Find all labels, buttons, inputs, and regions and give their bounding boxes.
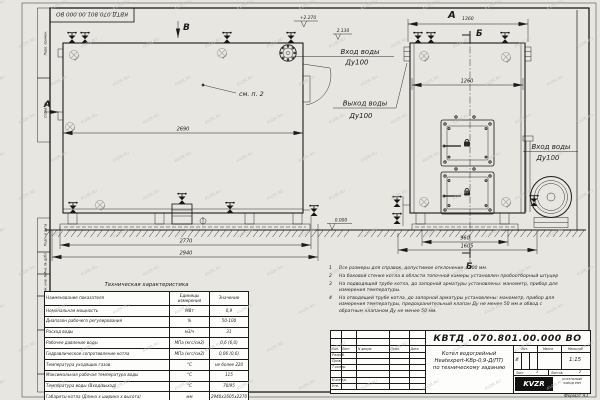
tech-col-header: Значение: [209, 292, 248, 305]
rotation-mark-icon: [419, 197, 428, 208]
dim-2770: 2770: [180, 239, 193, 245]
dim-1360: 1360: [462, 16, 474, 22]
param-value: не более 220: [209, 360, 248, 370]
param-unit: °С: [169, 371, 209, 381]
note-number: 2: [329, 274, 339, 280]
tech-col-header: Единицы измерения: [169, 292, 209, 305]
dim-960: 960: [460, 236, 470, 242]
tb-product-name: Котел водогрейный Heatexpert-КВр-0,9-Д(П…: [425, 345, 513, 393]
param-name: Температура воды (Вход/выход): [45, 382, 169, 392]
tb-mass-label: Масса: [543, 347, 553, 351]
valve-icon: [222, 32, 231, 43]
note-text: На отводящей трубе котла, до запорной ар…: [339, 296, 567, 315]
tb-row-tkontr: Т.контр.: [332, 365, 346, 369]
param-name: Диапазон рабочего регулирования: [45, 317, 169, 327]
top-stamp-text: КВТД.070.801.00.000 ВО: [55, 11, 127, 17]
param-name: Рабочее давление воды: [45, 338, 169, 348]
param-value: 2940х1605х2270: [209, 392, 248, 400]
notes-list: 1 Все размеры для справок, допустимое от…: [329, 266, 567, 317]
door-lock-icon: [464, 140, 470, 147]
furnace-door-lower: [441, 168, 494, 214]
inlet-flange-icon: [280, 45, 296, 61]
tb-lit-value: И: [516, 357, 519, 362]
note-item: 2 На боковой стенке котла в области топо…: [329, 274, 567, 280]
tb-company: КОТЕЛЬНЫЙ ЗАВОД РЭП: [555, 378, 589, 386]
drawing-sheet: Перв. примен. Справ. № Подп. и дата Инв.…: [0, 0, 600, 400]
frame-label: Перв. примен.: [43, 31, 47, 56]
callout-see-p2: см. п. 2: [239, 90, 264, 98]
label-inlet-size-side: Ду100: [345, 59, 370, 67]
table-row: Габариты котла (Длина х ширина х высота)…: [45, 391, 248, 400]
valve-icon: [426, 32, 435, 43]
table-row: Максимальная рабочая температура воды °С…: [45, 370, 248, 381]
param-value: 31: [209, 328, 248, 338]
note-text: На подводящей трубе котла, до запорной а…: [339, 282, 567, 295]
tb-col-podp: Подп.: [391, 347, 400, 351]
rotation-mark-icon: [95, 200, 104, 211]
label-inlet-side: Вход воды: [340, 48, 380, 56]
tech-table-title: Техническая характеристика: [44, 282, 249, 291]
valve-icon: [413, 32, 422, 43]
dim-2690: 2690: [177, 127, 190, 133]
view-label-a-side: А: [43, 100, 51, 110]
tb-scale-label: Масштаб: [568, 347, 583, 351]
tb-product-line1: Котел водогрейный: [425, 351, 513, 358]
elev-2130: 2.130: [337, 28, 350, 34]
tech-table: Техническая характеристика Наименование …: [44, 282, 249, 400]
param-unit: МВт: [169, 306, 209, 316]
valve-icon: [500, 32, 509, 43]
valve-icon: [68, 202, 77, 213]
elev-2270: +2.270: [300, 15, 316, 21]
param-name: Температура уходящих газов: [45, 360, 169, 370]
tb-col-izm: Изм.: [332, 347, 339, 351]
param-value: 50-100: [209, 317, 248, 327]
label-outlet-size-side: Ду100: [349, 112, 374, 120]
note-text: Все размеры для справок, допустимое откл…: [339, 266, 567, 272]
view-label-v: В: [183, 23, 190, 33]
table-row: Диапазон рабочего регулирования % 50-100: [45, 316, 248, 327]
param-name: Гидравлическое сопротивление котла: [45, 349, 169, 359]
valve-icon: [225, 202, 234, 213]
tb-row-prov: Пров.: [332, 359, 342, 363]
param-name: Максимальная рабочая температура воды: [45, 371, 169, 381]
param-unit: МПа (кгс/см2): [169, 349, 209, 359]
note-item: 4 На отводящей трубе котла, до запорной …: [329, 296, 567, 315]
label-inlet-front: Вход воды: [531, 143, 571, 151]
tb-sheet-label: Лист: [516, 371, 524, 375]
rotation-mark-icon: [501, 197, 510, 208]
ground: [45, 230, 586, 237]
tb-lit-label: Лит.: [521, 347, 528, 351]
tb-scale-value: 1:15: [569, 357, 581, 363]
tb-row-nkontr: Н.контр.: [332, 378, 347, 382]
note-item: 3 На подводящей трубе котла, до запорной…: [329, 282, 567, 295]
rotation-mark-icon: [217, 48, 226, 59]
param-value: 0,06 (0,6): [209, 349, 248, 359]
dim-1605: 1605: [461, 244, 474, 250]
tech-col-header: Наименование показателя: [45, 292, 169, 305]
param-value: 70/95: [209, 382, 248, 392]
table-row: Рабочее давление воды МПа (кгс/см2) 0,6 …: [45, 337, 248, 348]
rotation-mark-icon: [69, 50, 78, 61]
table-row: Номинальная мощность МВт 0,9: [45, 305, 248, 316]
format-note: Формат А3: [500, 393, 588, 398]
tb-col-data: Дата: [411, 347, 419, 351]
side-view: 2690 2770 2940 +2.270 2.130 0.000 В А: [43, 15, 407, 261]
label-outlet-side: Выход воды: [343, 100, 388, 108]
valve-icon: [177, 193, 186, 204]
rotation-mark-icon: [419, 51, 428, 62]
drain-valve-icon: [309, 205, 318, 216]
rotation-mark-icon: [65, 122, 74, 133]
param-value: 115: [209, 371, 248, 381]
rotation-mark-icon: [501, 52, 510, 63]
furnace-door-upper: [441, 116, 494, 166]
valve-icon: [67, 32, 76, 43]
door-lock-icon: [464, 189, 470, 196]
dim-1260: 1260: [461, 79, 474, 85]
valve-icon: [80, 32, 89, 43]
note-item: 1 Все размеры для справок, допустимое от…: [329, 266, 567, 272]
table-row: Температура воды (Вход/выход) °С 70/95: [45, 381, 248, 392]
table-row: Температура уходящих газов °С не более 2…: [45, 359, 248, 370]
tb-doc-number: КВТД .070.801.00.000 ВО: [425, 331, 590, 345]
kvzr-logo: KVZR: [515, 377, 553, 391]
param-name: Номинальная мощность: [45, 306, 169, 316]
param-value: 0,6 (6,0): [209, 338, 248, 348]
tb-col-list: Лист: [342, 347, 350, 351]
section-label-b-top: Б: [476, 29, 483, 39]
valve-icon: [286, 32, 295, 43]
valve-icon: [392, 196, 401, 207]
note-number: 3: [329, 282, 339, 295]
param-unit: м3/ч: [169, 328, 209, 338]
dim-2940: 2940: [180, 251, 193, 257]
tb-product-line3: по техническому заданию: [425, 365, 513, 372]
param-unit: °С: [169, 360, 209, 370]
tb-sheet-value: 1: [536, 370, 538, 374]
note-number: 4: [329, 296, 339, 315]
elev-0000: 0.000: [335, 218, 348, 224]
tb-row-razrab: Разраб.: [332, 353, 345, 357]
tb-product-line2: Heatexpert-КВр-0,9-Д(ПТ): [425, 358, 513, 365]
tb-company-line2: ЗАВОД РЭП: [555, 382, 589, 386]
blower-fan-icon: [531, 177, 572, 228]
param-name: Габариты котла (Длина х ширина х высота): [45, 392, 169, 400]
tb-row-utv: Утв.: [332, 384, 339, 388]
tb-sheets-value: 2: [579, 370, 581, 374]
front-view: Б Б 1260: [392, 10, 578, 272]
tb-col-dokum: N докум.: [358, 347, 372, 351]
view-label-a-front: А: [447, 10, 456, 21]
table-row: Расход воды м3/ч 31: [45, 327, 248, 338]
label-inlet-size-front: Ду100: [536, 154, 561, 162]
table-row: Гидравлическое сопротивление котла МПа (…: [45, 348, 248, 359]
note-number: 1: [329, 266, 339, 272]
valve-icon: [392, 213, 401, 224]
tb-sheets-label: Листов: [551, 371, 563, 375]
param-value: 0,9: [209, 306, 248, 316]
param-unit: мм: [169, 392, 209, 400]
pump-icon: [172, 204, 206, 225]
param-unit: %: [169, 317, 209, 327]
param-name: Расход воды: [45, 328, 169, 338]
title-block: Изм. Лист N докум. Подп. Дата Разраб. Пр…: [330, 330, 591, 394]
frame-label: Инв. № дубл.: [43, 252, 47, 275]
note-text: На боковой стенке котла в области топочн…: [339, 274, 567, 280]
param-unit: МПа (кгс/см2): [169, 338, 209, 348]
param-unit: °С: [169, 382, 209, 392]
